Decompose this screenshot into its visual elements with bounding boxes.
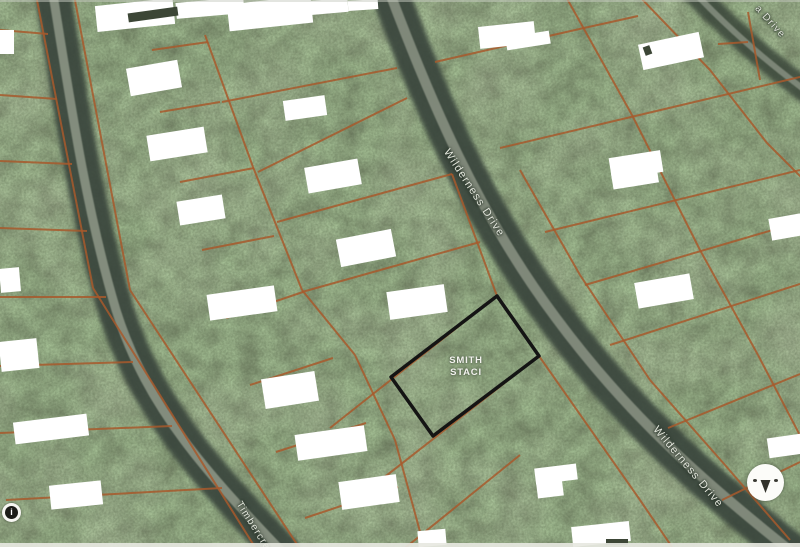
redaction-box — [0, 30, 14, 54]
north-arrow-west-dot — [753, 479, 757, 482]
redaction-box — [0, 338, 39, 372]
aerial-parcel-map: Wilderness Drive Wilderness Drive a Driv… — [0, 0, 800, 547]
north-arrow-icon — [747, 464, 784, 501]
parcel-owner-line1: SMITH — [449, 355, 483, 367]
redaction-box — [417, 529, 446, 547]
parcel-owner-label: SMITH STACI — [449, 355, 483, 379]
redaction-box — [536, 480, 564, 498]
info-marker-glyph: i — [5, 506, 18, 519]
north-arrow-needle — [759, 480, 772, 493]
map-graphics — [0, 0, 800, 547]
redaction-mark — [606, 539, 628, 545]
redaction-box — [0, 267, 21, 293]
parcel-owner-line2: STACI — [449, 367, 483, 379]
info-marker-icon: i — [2, 503, 21, 522]
north-arrow-east-dot — [774, 479, 778, 482]
